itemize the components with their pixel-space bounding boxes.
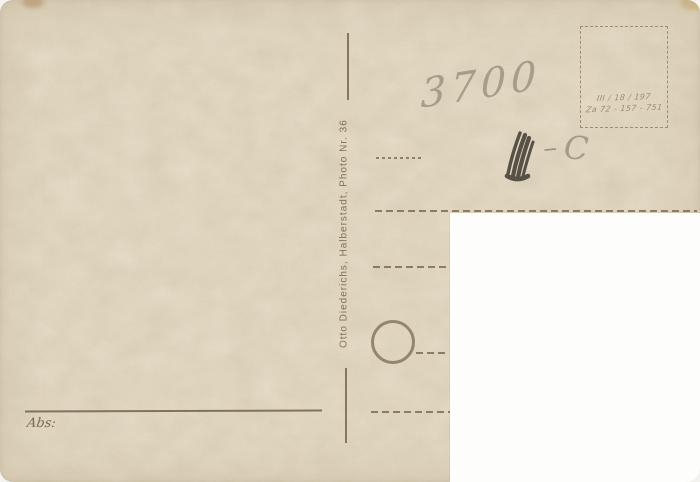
postmark-circle xyxy=(371,320,415,364)
print-code-line-2: Za 72 - 157 - 751 xyxy=(585,102,663,116)
paper-stain-top-right xyxy=(680,0,700,10)
divider-line-top xyxy=(347,33,349,100)
handwritten-number: 3700 xyxy=(420,52,541,118)
address-line-3 xyxy=(373,266,450,268)
address-line-1 xyxy=(376,157,424,159)
stamp-box: III / 18 / 197 Za 72 - 157 - 751 xyxy=(580,26,668,128)
divider-line-bottom xyxy=(345,368,347,443)
paper-stain-top-left xyxy=(22,0,44,8)
sender-line xyxy=(25,409,322,412)
publisher-imprint: Otto Diederichs, Halberstadt, Photo Nr. … xyxy=(333,100,355,368)
handwritten-letter: C xyxy=(563,128,590,168)
sender-label: Abs: xyxy=(26,416,57,431)
postcard-back: III / 18 / 197 Za 72 - 157 - 751 3700 – … xyxy=(0,0,700,482)
white-cutout-region xyxy=(450,213,700,482)
address-line-4 xyxy=(416,352,449,354)
address-line-5 xyxy=(371,411,450,413)
address-line-2 xyxy=(375,210,697,212)
handwritten-dash: – xyxy=(541,130,558,164)
